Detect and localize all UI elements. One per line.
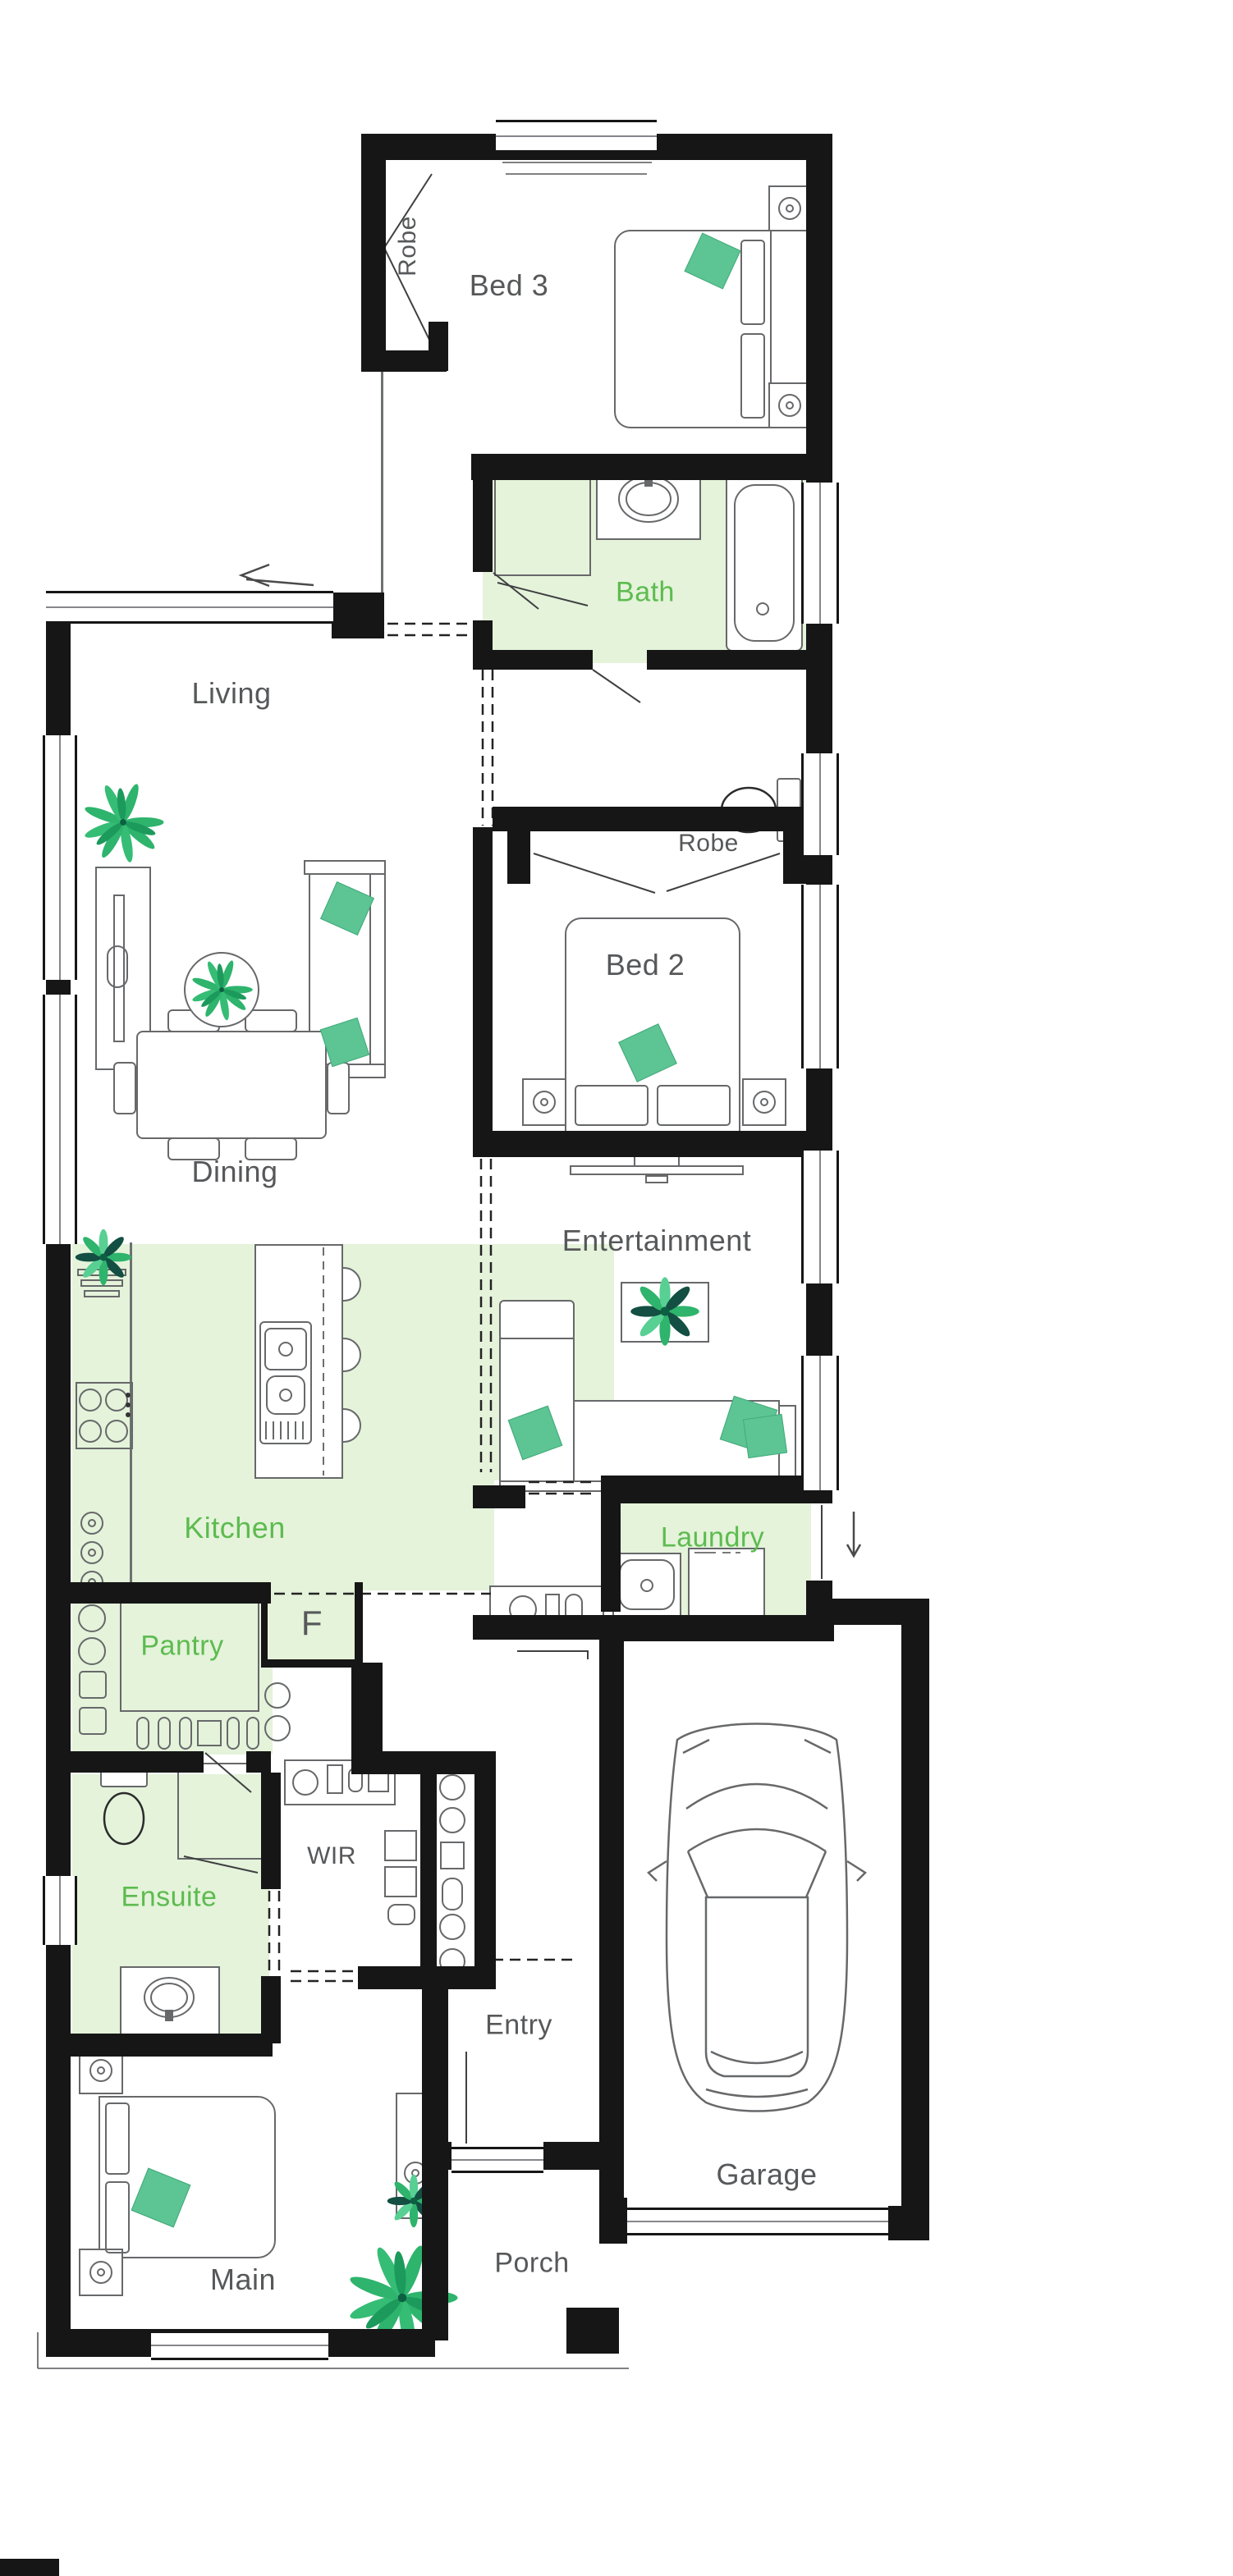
- wall-segment: [246, 1751, 271, 1773]
- wall-segment: [473, 1485, 525, 1508]
- wall-segment: [261, 1773, 281, 1889]
- room-label-entry: Entry: [485, 2010, 552, 2042]
- window: [43, 995, 77, 1244]
- room-label-ensuite: Ensuite: [121, 1882, 218, 1914]
- wall-segment: [473, 1131, 832, 1157]
- wall-segment: [46, 1751, 204, 1773]
- wall-segment: [888, 2206, 929, 2240]
- room-label-pantry: Pantry: [140, 1631, 223, 1663]
- wall-segment: [473, 454, 493, 572]
- wall-segment: [474, 1751, 496, 1989]
- wall-segment: [351, 1751, 484, 1774]
- room-label-robe-bed3: Robe: [394, 216, 422, 277]
- bath-drain-icon: [757, 603, 768, 615]
- room-label-wir: WIR: [307, 1842, 356, 1870]
- front-door-threshold: [451, 2147, 543, 2173]
- wall-segment: [261, 1582, 268, 1668]
- wall-segment: [647, 650, 832, 670]
- wall-segment: [351, 1663, 383, 1755]
- window: [43, 1876, 77, 1945]
- garage-door: [627, 2208, 888, 2235]
- plant-icon: [83, 782, 163, 862]
- window: [151, 2331, 328, 2360]
- wall-segment: [604, 1615, 834, 1641]
- wall-segment: [46, 1943, 71, 2332]
- plant-icon: [630, 1277, 699, 1346]
- room-label-entertainment: Entertainment: [562, 1224, 752, 1258]
- wall-segment: [358, 1966, 481, 1989]
- island-sink-details: [266, 1247, 323, 1476]
- wall-segment: [493, 807, 832, 831]
- wall-segment: [429, 322, 448, 371]
- wall-segment: [46, 1584, 71, 1758]
- wall-segment: [46, 1242, 71, 1587]
- wall-segment: [355, 1582, 363, 1668]
- room-label-laundry: Laundry: [661, 1522, 764, 1554]
- window: [801, 885, 839, 1068]
- wall-segment: [901, 1599, 929, 2226]
- window: [496, 120, 657, 153]
- room-label-bed2: Bed 2: [606, 948, 685, 982]
- plant-icon: [76, 1229, 131, 1285]
- page-corner-mark: [0, 2559, 59, 2576]
- wall-segment: [471, 454, 832, 480]
- porch-column: [566, 2308, 619, 2354]
- window: [801, 1356, 839, 1490]
- laundry-drain-icon: [641, 1580, 653, 1591]
- window: [801, 753, 839, 855]
- room-label-main: Main: [210, 2263, 276, 2297]
- wall-segment: [261, 1659, 363, 1668]
- sliding-door: [46, 591, 333, 624]
- window: [801, 1151, 839, 1283]
- wall-segment: [599, 2198, 627, 2244]
- wall-segment: [422, 2142, 451, 2170]
- car-icon: [649, 1724, 865, 2112]
- room-label-porch: Porch: [494, 2248, 569, 2280]
- wall-segment: [473, 1615, 604, 1640]
- window: [801, 483, 839, 624]
- floor-plan: Bed 3 Robe Bath Living Robe Bed 2 Entert…: [0, 0, 1233, 2576]
- cooktop-knobs: [126, 1393, 131, 1417]
- room-label-dining: Dining: [191, 1155, 277, 1189]
- wall-segment: [46, 2034, 273, 2057]
- room-label-bath: Bath: [616, 577, 675, 609]
- wall-segment: [543, 2142, 601, 2170]
- wall-segment: [507, 807, 530, 884]
- wall-segment: [806, 1581, 832, 1617]
- wall-segment: [473, 827, 493, 1137]
- wall-segment: [46, 1756, 71, 1878]
- window: [43, 735, 77, 980]
- room-label-fridge: F: [301, 1604, 323, 1643]
- step-arrow-down-icon: [847, 1512, 860, 1556]
- room-label-robe-bed2: Robe: [678, 830, 739, 858]
- room-label-kitchen: Kitchen: [184, 1511, 286, 1545]
- wall-segment: [473, 650, 593, 670]
- wall-segment: [361, 134, 386, 365]
- room-label-garage: Garage: [716, 2157, 817, 2192]
- cooktop-burners: [80, 1389, 127, 1593]
- slide-arrow-left-icon: [241, 565, 314, 586]
- wall-segment: [599, 1623, 624, 2208]
- wall-segment: [601, 1476, 832, 1503]
- room-label-bed3: Bed 3: [470, 268, 549, 303]
- wall-segment: [601, 1502, 621, 1612]
- wall-segment: [46, 1582, 271, 1604]
- wall-segment: [332, 593, 384, 638]
- room-label-living: Living: [191, 676, 271, 711]
- wall-segment: [420, 1753, 437, 1968]
